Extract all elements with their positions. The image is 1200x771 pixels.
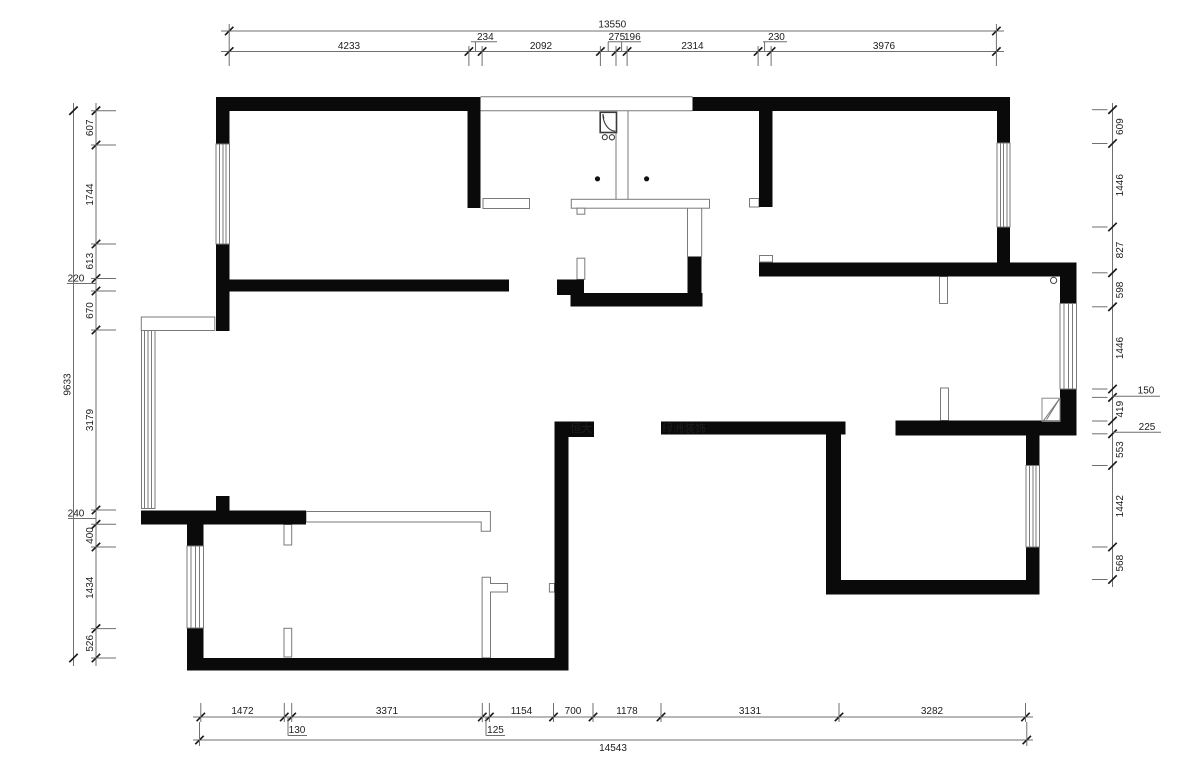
svg-text:225: 225 (1139, 422, 1156, 433)
svg-text:613: 613 (85, 252, 96, 269)
svg-text:419: 419 (1115, 400, 1126, 417)
svg-text:568: 568 (1115, 554, 1126, 571)
svg-text:4233: 4233 (338, 41, 361, 52)
svg-text:3282: 3282 (921, 706, 944, 717)
svg-text:1472: 1472 (231, 706, 254, 717)
svg-text:130: 130 (289, 725, 306, 736)
svg-text:3179: 3179 (85, 408, 96, 431)
svg-text:3371: 3371 (376, 706, 399, 717)
svg-text:2092: 2092 (530, 41, 553, 52)
svg-text:1154: 1154 (511, 706, 533, 717)
svg-text:1442: 1442 (1115, 495, 1126, 518)
svg-text:1446: 1446 (1115, 336, 1126, 359)
svg-text:14543: 14543 (599, 743, 627, 754)
svg-text:553: 553 (1115, 441, 1126, 458)
svg-text:绿洲装饰: 绿洲装饰 (662, 421, 706, 435)
svg-text:1446: 1446 (1115, 174, 1126, 197)
svg-text:1434: 1434 (85, 576, 96, 599)
svg-text:3976: 3976 (873, 41, 896, 52)
svg-text:125: 125 (487, 725, 504, 736)
svg-text:400: 400 (85, 527, 96, 544)
svg-text:526: 526 (85, 635, 96, 652)
svg-text:240: 240 (68, 509, 85, 520)
svg-text:1178: 1178 (616, 706, 638, 717)
svg-text:1744: 1744 (85, 183, 96, 206)
svg-text:700: 700 (565, 706, 582, 717)
svg-text:9633: 9633 (63, 373, 74, 396)
svg-text:609: 609 (1115, 118, 1126, 135)
svg-text:150: 150 (1138, 386, 1155, 397)
svg-text:2314: 2314 (681, 41, 704, 52)
svg-text:670: 670 (85, 302, 96, 319)
svg-text:恒大: 恒大 (570, 421, 592, 435)
svg-text:607: 607 (85, 119, 96, 136)
svg-text:13550: 13550 (598, 20, 626, 31)
svg-text:598: 598 (1115, 281, 1126, 298)
svg-text:827: 827 (1115, 241, 1126, 258)
svg-text:3131: 3131 (739, 706, 762, 717)
svg-text:220: 220 (68, 274, 85, 285)
